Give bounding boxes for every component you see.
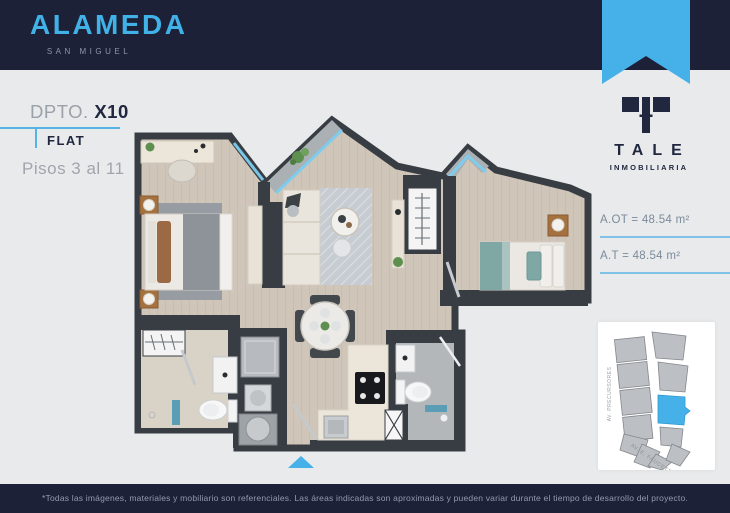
hall-closet xyxy=(408,188,437,250)
disclaimer-text: *Todas las imágenes, materiales y mobili… xyxy=(0,484,730,513)
unit-type-label: FLAT xyxy=(47,133,85,148)
bedroom1-bed xyxy=(145,214,232,290)
bedroom2-bed xyxy=(480,242,565,290)
flyer-page: ALAMEDA SAN MIGUEL DPTO. X10 FLAT Pisos … xyxy=(0,0,730,513)
bedroom2-nightstand xyxy=(548,215,568,236)
map-street-left-label: AV. PRECURSORES xyxy=(607,366,613,421)
divider-rule-horizontal xyxy=(0,127,120,129)
project-title: ALAMEDA xyxy=(30,9,188,41)
floor-plan xyxy=(133,113,598,471)
duct-shaft xyxy=(385,410,403,440)
floors-label: Pisos 3 al 11 xyxy=(22,159,125,179)
living-sofa xyxy=(283,190,320,285)
site-map: AV. PRECURSORES AV. E. FAUCETT xyxy=(598,322,715,470)
footer-bar: *Todas las imágenes, materiales y mobili… xyxy=(0,484,730,513)
brand-tagline: INMOBILIARIA xyxy=(598,163,698,172)
ribbon-bookmark-icon xyxy=(602,0,690,86)
tale-logo-icon xyxy=(621,97,671,134)
divider-rule-vertical xyxy=(35,127,37,148)
brand-name: TALE xyxy=(598,142,698,160)
unit-code: X10 xyxy=(94,101,128,122)
area-underline xyxy=(600,236,730,238)
project-subtitle: SAN MIGUEL xyxy=(30,47,148,56)
area-underline xyxy=(600,272,730,274)
unit-label-prefix: DPTO. xyxy=(30,101,89,122)
entry-arrow-icon xyxy=(288,456,314,468)
area-row-aot: A.OT = 48.54 m² xyxy=(600,214,690,226)
unit-label: DPTO. X10 xyxy=(30,101,129,123)
hall-console xyxy=(392,200,404,268)
area-row-at: A.T = 48.54 m² xyxy=(600,250,680,262)
map-highlight-unit xyxy=(658,395,690,425)
